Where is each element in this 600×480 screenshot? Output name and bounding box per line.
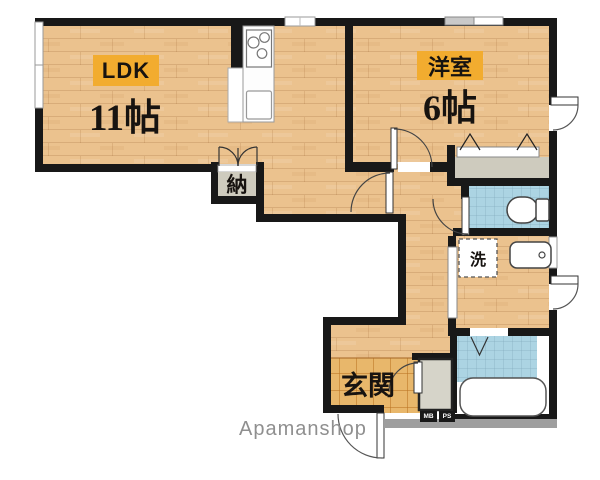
meter-box-compartment — [419, 359, 452, 410]
right-door-gap-2 — [549, 284, 557, 310]
meter-box-label: MB — [420, 411, 437, 422]
laundry-label: 洗 — [459, 240, 497, 276]
window-left — [35, 22, 43, 108]
bottom-slab — [384, 419, 557, 428]
entrance-tile-floor-2 — [384, 405, 420, 413]
bathroom-floor — [456, 336, 537, 382]
washbasin-icon — [510, 242, 551, 268]
closet-door-panel — [457, 147, 539, 157]
kitchen-sink-icon — [247, 91, 272, 119]
pipe-space-label: PS — [439, 411, 455, 422]
watermark-text: Apamanshop — [239, 416, 367, 442]
bathroom-door-opening — [470, 328, 508, 336]
entrance-label: 玄関 — [326, 366, 410, 400]
fridge-space — [228, 68, 243, 122]
floor-plan-drawing — [0, 0, 600, 480]
window-top-western-room — [445, 17, 503, 25]
toilet-icon — [507, 197, 549, 223]
stove-icon — [247, 30, 272, 67]
window-top-kitchen — [285, 17, 315, 26]
bathtub-icon — [460, 378, 546, 416]
right-door-gap-1 — [549, 105, 557, 131]
closet-interior — [455, 157, 549, 178]
kitchen-stub-wall — [231, 19, 243, 68]
ldk-room-label: LDK — [93, 55, 159, 86]
western-room-label: 洋室 — [417, 51, 483, 80]
floor-plan-canvas: LDK 11帖 洋室 6帖 納 洗 玄関 MB PS Apamanshop — [0, 0, 600, 480]
western-room-size: 6帖 — [400, 84, 500, 126]
storage-label: 納 — [218, 171, 256, 196]
washroom-sliding-door — [448, 247, 457, 318]
ldk-room-size: 11帖 — [65, 90, 185, 138]
